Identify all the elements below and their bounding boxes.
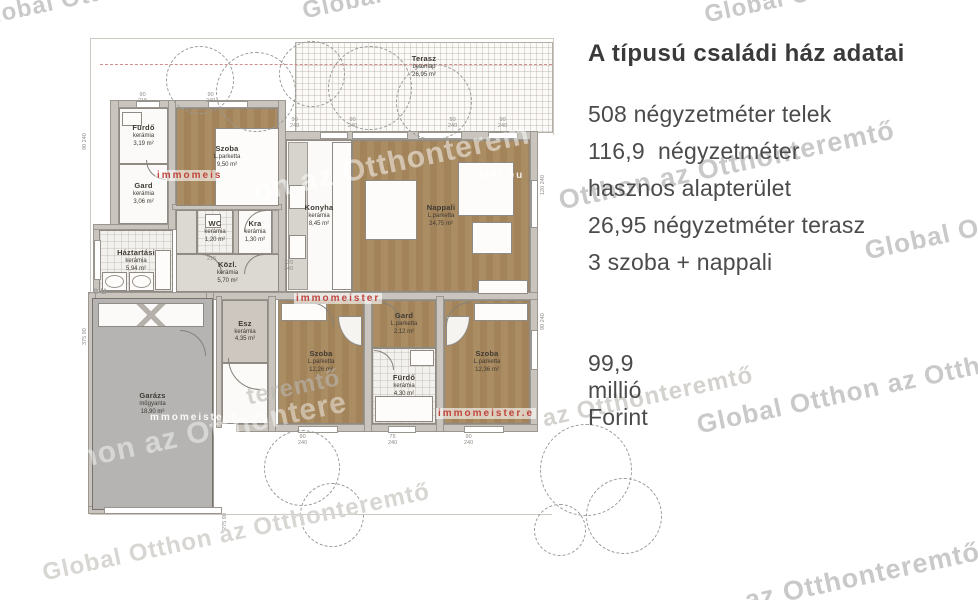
room-label: Háztartásikerámia5,94 m² <box>117 248 155 273</box>
info-line: hasznos alapterület <box>588 175 865 212</box>
room-label: SzobaL.parketta9,50 m² <box>214 144 241 169</box>
plan-frame-line <box>90 38 554 39</box>
window <box>320 132 348 139</box>
stove <box>289 185 306 209</box>
dimension-label: 90 240 <box>82 133 88 150</box>
dimension-label: 90 215 <box>138 92 147 105</box>
room-area <box>176 210 197 254</box>
price-text: 99,9 millió Forint <box>588 350 648 431</box>
room-label: Gardkerámia3,06 m² <box>133 181 154 206</box>
room-label: Eszkerámia4,35 m² <box>234 319 255 344</box>
tree-outline <box>300 483 364 547</box>
room-label: SzobaL.parketta12,36 m² <box>474 349 501 374</box>
room-label: NappaliL.parketta24,75 m² <box>427 203 456 228</box>
window <box>531 330 538 370</box>
washing-machine <box>102 272 127 291</box>
plan-frame-line <box>553 38 554 135</box>
kitchen-sink <box>289 235 306 259</box>
bathroom-sink <box>410 350 434 366</box>
wall <box>268 296 276 432</box>
room-label: SzobaL.parketta12,26 m² <box>308 349 335 374</box>
dimension-label: 90 240 <box>348 117 357 130</box>
floor-plan: Teraszbetonlap26,95 m²Fürdőkerámia3,19 m… <box>0 0 978 600</box>
tree-outline <box>586 478 662 554</box>
info-line: 26,95 négyzetméter terasz <box>588 212 865 249</box>
dimension-label: 90 240 <box>298 434 307 447</box>
room-label: WCkerámia1,20 m² <box>204 219 225 244</box>
room-Garázs: Garázsműgyanta18,90 m² <box>92 298 213 510</box>
dimension-label: 90 240 <box>498 117 507 130</box>
wall <box>436 296 444 432</box>
bathtub <box>375 396 433 422</box>
wall <box>110 100 119 230</box>
room-label: Fürdőkerámia4,30 m² <box>393 373 415 398</box>
rug <box>478 280 528 294</box>
sofa <box>458 162 514 216</box>
dimension-label: 90 240 <box>464 434 473 447</box>
property-details: 508 négyzetméter telek116,9 négyzetméter… <box>588 101 865 286</box>
info-line: 3 szoba + nappali <box>588 249 865 286</box>
room-label: Krakerámia1,30 m² <box>244 219 265 244</box>
listing-image: Teraszbetonlap26,95 m²Fürdőkerámia3,19 m… <box>0 0 978 600</box>
wall <box>272 210 279 254</box>
window <box>388 426 416 433</box>
window <box>464 426 504 433</box>
garage-shelf <box>98 303 204 327</box>
kitchen-counter-right <box>332 142 352 290</box>
window <box>94 240 101 280</box>
room-Esz: Eszkerámia4,35 m² <box>222 300 268 363</box>
dryer <box>129 272 154 291</box>
info-line: 116,9 négyzetméter <box>588 138 865 175</box>
page-title: A típusú családi ház adatai <box>588 40 905 68</box>
wall <box>530 131 538 432</box>
dimension-label: 75 240 <box>388 434 397 447</box>
closet-right <box>474 303 528 321</box>
dimension-label: 120 240 <box>540 175 546 195</box>
room-label: Teraszbetonlap26,95 m² <box>412 54 436 79</box>
window <box>531 180 538 228</box>
sofa-2 <box>472 222 512 254</box>
room-label: Garázsműgyanta18,90 m² <box>139 391 165 416</box>
dining-table <box>365 180 417 240</box>
dimension-label: 215 <box>207 256 216 262</box>
wall <box>168 100 176 230</box>
dimension-label: 90 240 <box>206 92 215 105</box>
dimension-label: 90 240 <box>540 313 546 330</box>
window <box>488 132 518 139</box>
info-line: 508 négyzetméter telek <box>588 101 865 138</box>
room-label: Konyhakerámia8,45 m² <box>305 203 334 228</box>
room-label: Fürdőkerámia3,19 m² <box>132 123 154 148</box>
window <box>352 132 408 139</box>
room-label: GardL.parketta2,12 m² <box>391 311 418 336</box>
room-label: Közl.kerámia5,70 m² <box>217 260 238 285</box>
window <box>104 507 222 514</box>
dimension-label: 275 90 <box>222 513 228 530</box>
tree-outline <box>534 504 586 556</box>
wall <box>364 296 372 432</box>
dimension-label: 90 240 <box>290 117 299 130</box>
dimension-label: 120 240 <box>284 260 293 273</box>
dimension-label: 375 90 <box>82 328 88 345</box>
laundry-counter <box>155 250 171 290</box>
dimension-label: 50 240 <box>448 117 457 130</box>
